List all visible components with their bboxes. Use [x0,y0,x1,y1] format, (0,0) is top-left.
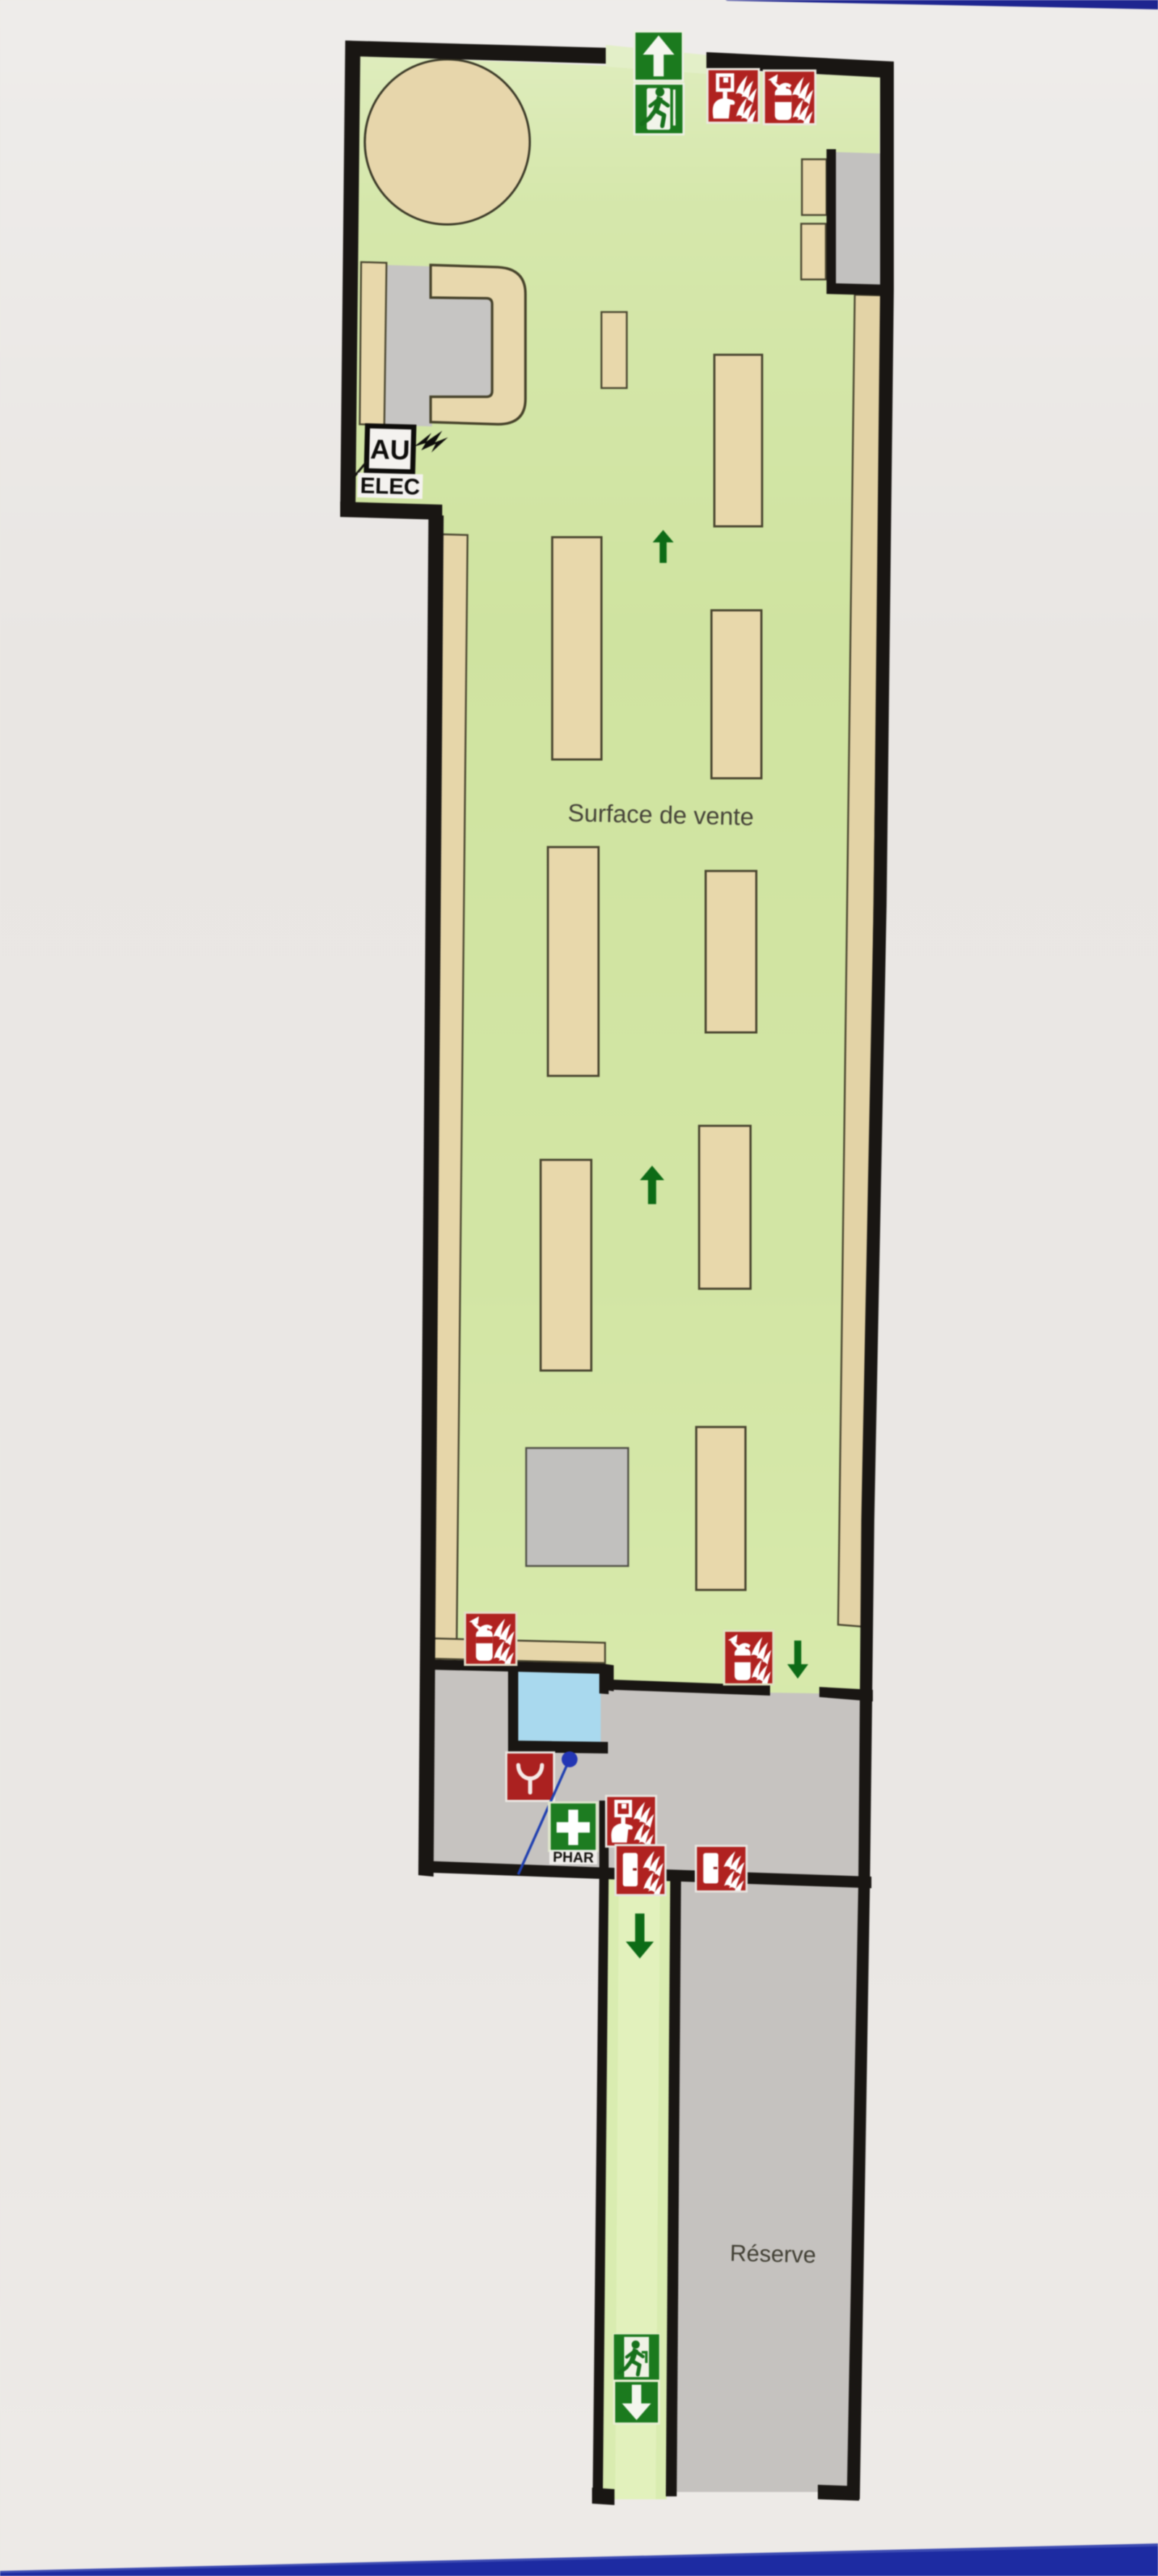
svg-text:PHAR: PHAR [553,1849,595,1866]
svg-text:Réserve: Réserve [730,2240,816,2268]
svg-text:Surface de vente: Surface de vente [567,799,754,831]
svg-text:ELEC: ELEC [360,473,420,500]
svg-text:AU: AU [370,434,410,466]
